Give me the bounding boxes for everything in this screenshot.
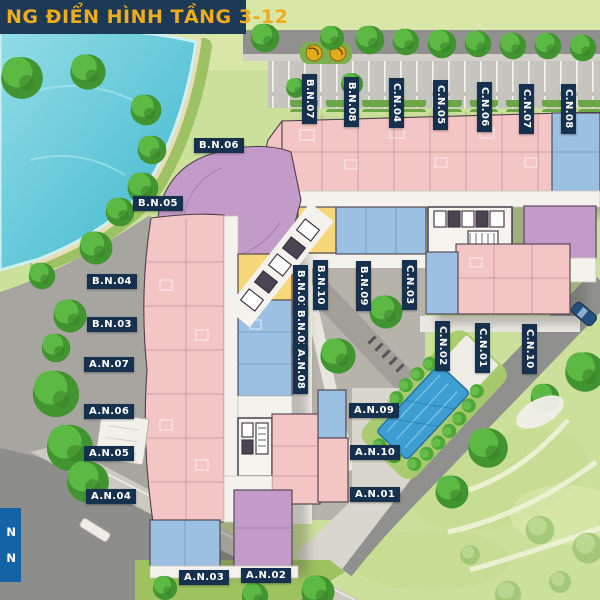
unit-tag-an09[interactable]: A.N.09 (349, 403, 399, 418)
unit-tag-bn09[interactable]: B.N.09 (356, 261, 371, 311)
unit-tag-bn10[interactable]: B.N.10 (313, 260, 328, 310)
unit-tag-an04[interactable]: A.N.04 (86, 489, 136, 504)
unit-tag-an10[interactable]: A.N.10 (350, 445, 400, 460)
plan-title: NG ĐIỂN HÌNH TẦNG 3-12 (0, 6, 288, 28)
unit-tag-bn03[interactable]: B.N.03 (87, 317, 137, 332)
site-plan: NG ĐIỂN HÌNH TẦNG 3-12 B.N.07 B.N.08 C.N… (0, 0, 600, 600)
unit-tag-an06[interactable]: A.N.06 (84, 404, 134, 419)
unit-tag-bn07[interactable]: B.N.07 (302, 74, 317, 124)
unit-tag-cn04[interactable]: C.N.04 (389, 78, 404, 128)
unit-tag-cn06[interactable]: C.N.06 (477, 82, 492, 132)
unit-tag-cn10[interactable]: C.N.10 (522, 324, 537, 374)
unit-tag-cn01[interactable]: C.N.01 (475, 323, 490, 373)
core-south (238, 418, 272, 476)
unit-tag-bn08[interactable]: B.N.08 (344, 77, 359, 127)
legend-box: N N (0, 508, 21, 582)
unit-tag-cn07[interactable]: C.N.07 (519, 84, 534, 134)
unit-tag-cn05[interactable]: C.N.05 (433, 80, 448, 130)
unit-tag-an08[interactable]: A.N.08 (293, 344, 308, 394)
unit-tag-an05[interactable]: A.N.05 (84, 446, 134, 461)
unit-tag-cn08[interactable]: C.N.08 (561, 84, 576, 134)
unit-tag-bn05[interactable]: B.N.05 (133, 196, 183, 211)
plan-title-banner: NG ĐIỂN HÌNH TẦNG 3-12 (0, 0, 246, 34)
unit-tag-cn03[interactable]: C.N.03 (402, 260, 417, 310)
legend-line-1: N (6, 525, 16, 539)
unit-tag-an03[interactable]: A.N.03 (179, 570, 229, 585)
unit-tag-an02[interactable]: A.N.02 (241, 568, 291, 583)
legend-line-2: N (6, 551, 16, 565)
unit-tag-cn02[interactable]: C.N.02 (435, 321, 450, 371)
unit-tag-an07[interactable]: A.N.07 (84, 357, 134, 372)
unit-tag-bn06[interactable]: B.N.06 (194, 138, 244, 153)
unit-tag-an01[interactable]: A.N.01 (350, 487, 400, 502)
unit-tag-bn04[interactable]: B.N.04 (87, 274, 137, 289)
